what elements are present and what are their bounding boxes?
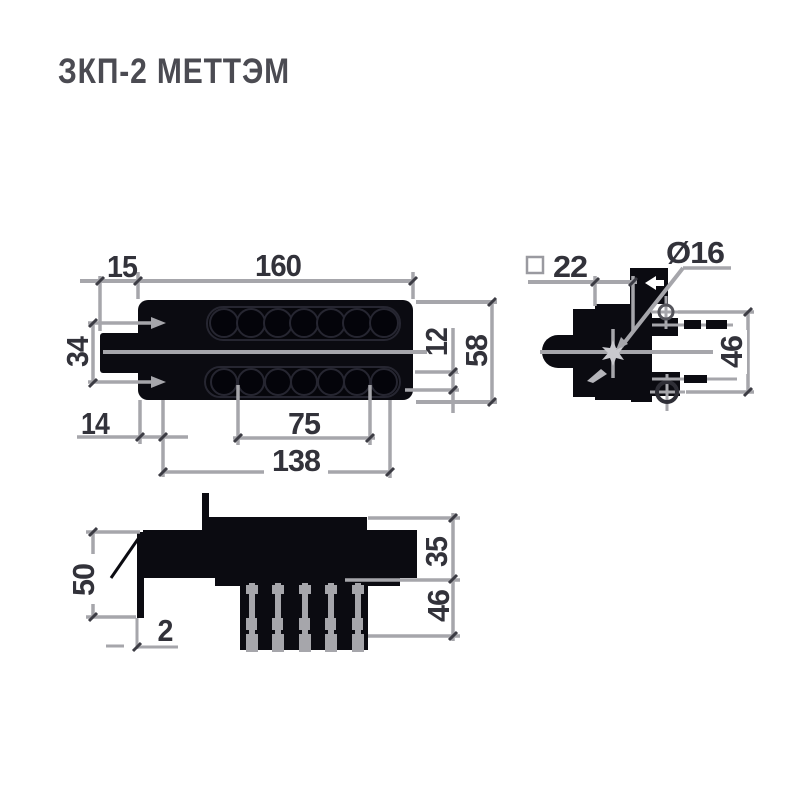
- bottom-hole: [265, 369, 291, 395]
- bottom-hole: [371, 369, 397, 395]
- hidden-dash: [684, 375, 707, 383]
- drawing-title: ЗКП-2 МЕТТЭМ: [58, 52, 290, 91]
- square-symbol-icon: [527, 257, 543, 273]
- top-hole: [210, 309, 238, 337]
- top-hole: [264, 309, 292, 337]
- dim-label-22: 22: [553, 249, 587, 284]
- top-hole: [317, 309, 345, 337]
- top-hole: [343, 309, 371, 337]
- dim-label-75: 75: [288, 406, 321, 441]
- dim-label-46-bottom: 46: [421, 589, 456, 622]
- top-hole: [237, 309, 265, 337]
- dim-label-15: 15: [107, 249, 138, 284]
- top-tab-stem: [202, 493, 209, 533]
- bottom-hole: [238, 369, 264, 395]
- hidden-dash: [684, 320, 701, 329]
- dim-label-160: 160: [255, 248, 301, 283]
- bottom-view: [86, 493, 460, 652]
- bottom-hole: [344, 369, 370, 395]
- top-hole: [370, 309, 398, 337]
- dim-label-2: 2: [158, 613, 173, 648]
- dim-label-50: 50: [66, 564, 101, 596]
- bottom-hole: [291, 369, 317, 395]
- dim-label-138: 138: [272, 443, 321, 478]
- top-hole: [290, 309, 318, 337]
- technical-drawing: ЗКП-2 МЕТТЭМ: [0, 0, 800, 800]
- drawing-canvas: ЗКП-2 МЕТТЭМ: [0, 0, 800, 800]
- bolt-bevel-line: [111, 539, 138, 578]
- faceplate-edge: [137, 532, 144, 618]
- lock-bar: [143, 530, 417, 578]
- bottom-hole: [318, 369, 344, 395]
- dim-label-46-side: 46: [714, 335, 749, 368]
- hidden-dash: [706, 320, 727, 329]
- dim-label-34: 34: [60, 335, 95, 367]
- dim-label-35: 35: [419, 536, 454, 567]
- dim-label-12: 12: [419, 328, 454, 356]
- bottom-hole: [211, 369, 237, 395]
- dim-label-14: 14: [81, 406, 111, 441]
- dim-label-58: 58: [459, 334, 494, 367]
- dim-label-dia16: Ø16: [666, 235, 725, 270]
